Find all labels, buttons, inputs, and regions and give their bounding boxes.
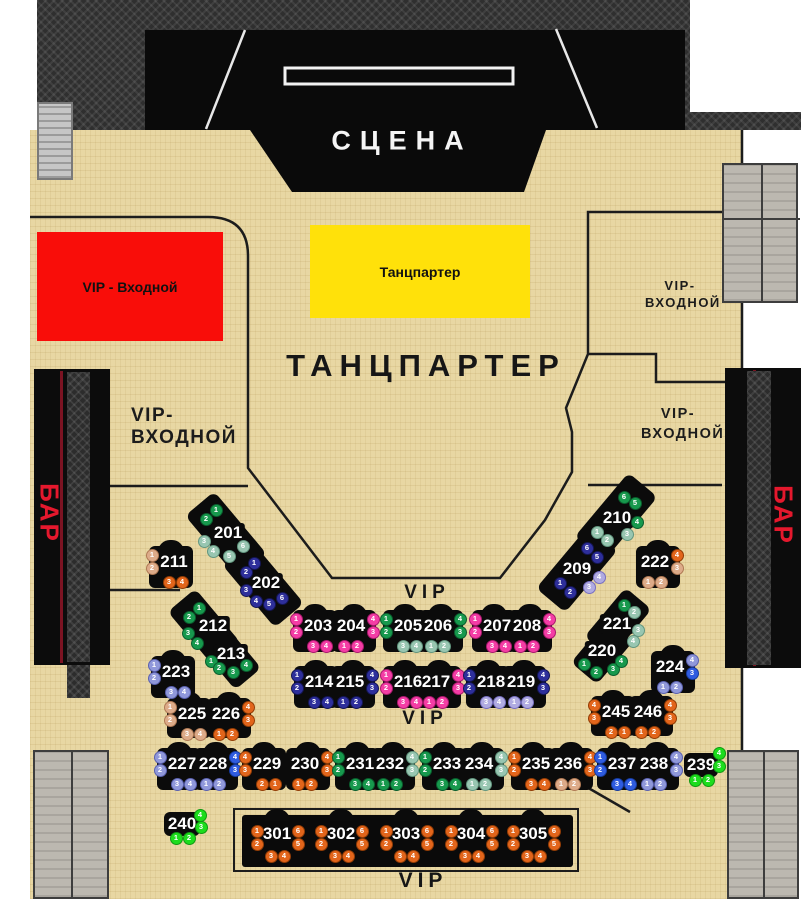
seat-2[interactable]: 2 — [419, 764, 432, 777]
table-number: 202 — [249, 573, 283, 593]
seat-5[interactable]: 5 — [223, 550, 236, 563]
table-number: 237 — [608, 754, 636, 774]
seat-2[interactable]: 2 — [670, 681, 683, 694]
seat-3[interactable]: 3 — [454, 626, 467, 639]
seat-3[interactable]: 3 — [181, 728, 194, 741]
seat-4[interactable]: 4 — [671, 549, 684, 562]
seat-2[interactable]: 2 — [628, 606, 641, 619]
seat-3[interactable]: 3 — [349, 778, 362, 791]
seat-3[interactable]: 3 — [621, 528, 634, 541]
seat-3[interactable]: 3 — [459, 850, 472, 863]
table-number: 240 — [168, 814, 196, 834]
table-number: 233 — [433, 754, 461, 774]
seat-6[interactable]: 6 — [548, 825, 561, 838]
seat-2[interactable]: 2 — [200, 513, 213, 526]
seat-5[interactable]: 5 — [292, 838, 305, 851]
seat-3[interactable]: 3 — [480, 696, 493, 709]
seat-1[interactable]: 1 — [290, 613, 303, 626]
seat-1[interactable]: 1 — [154, 751, 167, 764]
seat-4[interactable]: 4 — [627, 635, 640, 648]
seat-1[interactable]: 1 — [213, 728, 226, 741]
seat-5[interactable]: 5 — [548, 838, 561, 851]
seat-2[interactable]: 2 — [183, 832, 196, 845]
seat-3[interactable]: 3 — [521, 850, 534, 863]
seat-2[interactable]: 2 — [590, 666, 603, 679]
seat-4[interactable]: 4 — [367, 613, 380, 626]
seat-6[interactable]: 6 — [237, 540, 250, 553]
seat-4[interactable]: 4 — [543, 613, 556, 626]
seat-3[interactable]: 3 — [308, 696, 321, 709]
seat-4[interactable]: 4 — [242, 701, 255, 714]
seat-4[interactable]: 4 — [342, 850, 355, 863]
seat-1[interactable]: 1 — [578, 658, 591, 671]
seat-5[interactable]: 5 — [421, 838, 434, 851]
seat-1[interactable]: 1 — [291, 669, 304, 682]
seat-1[interactable]: 1 — [657, 681, 670, 694]
seat-3[interactable]: 3 — [495, 764, 508, 777]
seat-3[interactable]: 3 — [406, 764, 419, 777]
bar-left-label: БАР — [34, 483, 65, 543]
seat-1[interactable]: 1 — [170, 832, 183, 845]
table-number: 223 — [162, 662, 190, 682]
seat-4[interactable]: 4 — [495, 751, 508, 764]
table-number: 224 — [656, 657, 684, 677]
seat-6[interactable]: 6 — [618, 491, 631, 504]
table-number: 219 — [507, 672, 535, 692]
vip-entry-label-left: VIP-ВХОДНОЙ — [131, 405, 237, 449]
seat-4[interactable]: 4 — [191, 637, 204, 650]
seat-2[interactable]: 2 — [164, 714, 177, 727]
bar-left-texture-tail — [67, 665, 90, 698]
table-number: 210 — [600, 508, 634, 528]
seat-3[interactable]: 3 — [670, 764, 683, 777]
seat-1[interactable]: 1 — [419, 751, 432, 764]
seat-1[interactable]: 1 — [146, 549, 159, 562]
seat-1[interactable]: 1 — [251, 825, 264, 838]
seat-2[interactable]: 2 — [568, 778, 581, 791]
seat-2[interactable]: 2 — [146, 562, 159, 575]
seat-4[interactable]: 4 — [278, 850, 291, 863]
seat-1[interactable]: 1 — [423, 696, 436, 709]
seat-4[interactable]: 4 — [534, 850, 547, 863]
seat-3[interactable]: 3 — [686, 667, 699, 680]
seat-4[interactable]: 4 — [664, 699, 677, 712]
seat-3[interactable]: 3 — [227, 666, 240, 679]
seat-3[interactable]: 3 — [240, 584, 253, 597]
seat-3[interactable]: 3 — [486, 640, 499, 653]
seat-4[interactable]: 4 — [366, 669, 379, 682]
seat-4[interactable]: 4 — [194, 809, 207, 822]
seat-1[interactable]: 1 — [466, 778, 479, 791]
seat-2[interactable]: 2 — [702, 774, 715, 787]
seat-1[interactable]: 1 — [269, 778, 282, 791]
seat-2[interactable]: 2 — [351, 640, 364, 653]
seat-2[interactable]: 2 — [154, 764, 167, 777]
table-number: 228 — [199, 754, 227, 774]
table-number: 212 — [196, 616, 230, 636]
table-number: 302 — [327, 824, 355, 844]
seat-3[interactable]: 3 — [436, 778, 449, 791]
seat-2[interactable]: 2 — [655, 576, 668, 589]
seat-1[interactable]: 1 — [689, 774, 702, 787]
table-number: 238 — [640, 754, 668, 774]
table-number: 246 — [634, 702, 662, 722]
seat-2[interactable]: 2 — [226, 728, 239, 741]
seat-6[interactable]: 6 — [292, 825, 305, 838]
seat-1[interactable]: 1 — [380, 613, 393, 626]
bar-right: БАР — [725, 368, 801, 668]
table-number: 225 — [178, 704, 206, 724]
seat-1[interactable]: 1 — [618, 726, 631, 739]
seat-1[interactable]: 1 — [332, 751, 345, 764]
seat-4[interactable]: 4 — [178, 686, 191, 699]
seat-4[interactable]: 4 — [538, 778, 551, 791]
seat-2[interactable]: 2 — [390, 778, 403, 791]
seat-2[interactable]: 2 — [380, 682, 393, 695]
seat-3[interactable]: 3 — [543, 626, 556, 639]
table-number: 220 — [585, 641, 619, 661]
seat-2[interactable]: 2 — [350, 696, 363, 709]
table-number: 231 — [346, 754, 374, 774]
seat-2[interactable]: 2 — [315, 838, 328, 851]
seat-4[interactable]: 4 — [184, 778, 197, 791]
table-number: 245 — [602, 702, 630, 722]
table-number: 304 — [457, 824, 485, 844]
table-number: 236 — [554, 754, 582, 774]
entrance-block-top-right — [722, 163, 798, 303]
seat-3[interactable]: 3 — [713, 760, 726, 773]
seat-3[interactable]: 3 — [165, 686, 178, 699]
seat-2[interactable]: 2 — [601, 534, 614, 547]
seat-1[interactable]: 1 — [508, 751, 521, 764]
seat-4[interactable]: 4 — [686, 654, 699, 667]
seat-3[interactable]: 3 — [671, 562, 684, 575]
seat-4[interactable]: 4 — [410, 696, 423, 709]
seat-1[interactable]: 1 — [338, 640, 351, 653]
seat-3[interactable]: 3 — [367, 626, 380, 639]
bar-left: БАР — [34, 369, 110, 665]
table-number: 226 — [212, 704, 240, 724]
vip-label-bottom: VIP — [399, 869, 448, 893]
seat-4[interactable]: 4 — [176, 576, 189, 589]
seat-2[interactable]: 2 — [213, 662, 226, 675]
seat-3[interactable]: 3 — [242, 714, 255, 727]
seat-4[interactable]: 4 — [493, 696, 506, 709]
table-number: 209 — [560, 559, 594, 579]
vip-entry-label-right: VIP-ВХОДНОЙ — [641, 404, 715, 444]
seat-6[interactable]: 6 — [356, 825, 369, 838]
seat-2[interactable]: 2 — [469, 626, 482, 639]
table-number: 305 — [519, 824, 547, 844]
seat-2[interactable]: 2 — [648, 726, 661, 739]
stage-screen — [285, 68, 513, 84]
seat-1[interactable]: 1 — [463, 669, 476, 682]
table-number: 235 — [522, 754, 550, 774]
seat-3[interactable]: 3 — [588, 712, 601, 725]
seat-4[interactable]: 4 — [593, 571, 606, 584]
seat-1[interactable]: 1 — [555, 778, 568, 791]
table-number: 229 — [253, 754, 281, 774]
seat-2[interactable]: 2 — [479, 778, 492, 791]
stairs-top-left — [37, 102, 73, 180]
seat-2[interactable]: 2 — [594, 764, 607, 777]
seat-3[interactable]: 3 — [366, 682, 379, 695]
seat-1[interactable]: 1 — [164, 701, 177, 714]
seat-2[interactable]: 2 — [438, 640, 451, 653]
table-number: 214 — [305, 672, 333, 692]
seat-2[interactable]: 2 — [183, 611, 196, 624]
seat-4[interactable]: 4 — [588, 699, 601, 712]
seat-1[interactable]: 1 — [315, 825, 328, 838]
seat-3[interactable]: 3 — [611, 778, 624, 791]
seat-2[interactable]: 2 — [605, 726, 618, 739]
seat-2[interactable]: 2 — [213, 778, 226, 791]
seat-6[interactable]: 6 — [421, 825, 434, 838]
vip-label-upper: VIP — [404, 582, 450, 604]
seat-3[interactable]: 3 — [537, 682, 550, 695]
table-number: 218 — [477, 672, 505, 692]
seat-3[interactable]: 3 — [239, 764, 252, 777]
seat-2[interactable]: 2 — [436, 696, 449, 709]
seat-2[interactable]: 2 — [332, 764, 345, 777]
table-number: 215 — [336, 672, 364, 692]
seat-3[interactable]: 3 — [265, 850, 278, 863]
seat-4[interactable]: 4 — [472, 850, 485, 863]
seat-4[interactable]: 4 — [454, 613, 467, 626]
seat-2[interactable]: 2 — [251, 838, 264, 851]
seat-1[interactable]: 1 — [507, 825, 520, 838]
seat-1[interactable]: 1 — [445, 825, 458, 838]
seat-2[interactable]: 2 — [256, 778, 269, 791]
seat-1[interactable]: 1 — [292, 778, 305, 791]
entrance-block-bottom-left — [33, 750, 109, 899]
seat-4[interactable]: 4 — [410, 640, 423, 653]
entrance-block-bottom-right — [727, 750, 799, 899]
seat-4[interactable]: 4 — [631, 516, 644, 529]
seat-1[interactable]: 1 — [514, 640, 527, 653]
seat-3[interactable]: 3 — [171, 778, 184, 791]
seat-2[interactable]: 2 — [507, 838, 520, 851]
seat-4[interactable]: 4 — [537, 669, 550, 682]
table-number: 217 — [422, 672, 450, 692]
seat-2[interactable]: 2 — [148, 672, 161, 685]
seat-3[interactable]: 3 — [329, 850, 342, 863]
seat-4[interactable]: 4 — [362, 778, 375, 791]
seat-4[interactable]: 4 — [239, 751, 252, 764]
seat-4[interactable]: 4 — [407, 850, 420, 863]
seat-4[interactable]: 4 — [250, 595, 263, 608]
table-number: 203 — [304, 616, 332, 636]
seat-3[interactable]: 3 — [397, 696, 410, 709]
seat-3[interactable]: 3 — [394, 850, 407, 863]
seat-4[interactable]: 4 — [194, 728, 207, 741]
seat-1[interactable]: 1 — [635, 726, 648, 739]
bar-right-label: БАР — [768, 485, 799, 545]
seat-3[interactable]: 3 — [525, 778, 538, 791]
stage-label: СЦЕНА — [331, 126, 472, 157]
table-number: 211 — [160, 552, 187, 572]
seat-3[interactable]: 3 — [163, 576, 176, 589]
seat-2[interactable]: 2 — [380, 626, 393, 639]
seat-1[interactable]: 1 — [337, 696, 350, 709]
seat-2[interactable]: 2 — [291, 682, 304, 695]
seat-2[interactable]: 2 — [654, 778, 667, 791]
seat-6[interactable]: 6 — [276, 592, 289, 605]
seat-4[interactable]: 4 — [615, 655, 628, 668]
seat-2[interactable]: 2 — [240, 566, 253, 579]
table-number: 205 — [394, 616, 422, 636]
seat-2[interactable]: 2 — [521, 696, 534, 709]
vip-label-middle: VIP — [402, 708, 448, 730]
venue-seating-map: БАР БАР СЦЕНА VIP - Входной Танцпартер Т… — [0, 0, 801, 899]
seat-5[interactable]: 5 — [356, 838, 369, 851]
seat-1[interactable]: 1 — [594, 751, 607, 764]
seat-4[interactable]: 4 — [321, 696, 334, 709]
table-number: 216 — [394, 672, 422, 692]
seat-1[interactable]: 1 — [641, 778, 654, 791]
seat-5[interactable]: 5 — [486, 838, 499, 851]
seat-3[interactable]: 3 — [195, 821, 208, 834]
table-number: 207 — [483, 616, 511, 636]
seat-4[interactable]: 4 — [713, 747, 726, 760]
seat-1[interactable]: 1 — [148, 659, 161, 672]
stage-shape — [145, 30, 685, 192]
seat-3[interactable]: 3 — [307, 640, 320, 653]
seat-2[interactable]: 2 — [305, 778, 318, 791]
seat-5[interactable]: 5 — [263, 598, 276, 611]
seat-4[interactable]: 4 — [670, 751, 683, 764]
seat-1[interactable]: 1 — [425, 640, 438, 653]
seat-1[interactable]: 1 — [642, 576, 655, 589]
seat-4[interactable]: 4 — [240, 659, 253, 672]
seat-3[interactable]: 3 — [397, 640, 410, 653]
table-number: 239 — [687, 755, 715, 775]
table-number: 303 — [392, 824, 420, 844]
seat-4[interactable]: 4 — [499, 640, 512, 653]
seat-4[interactable]: 4 — [624, 778, 637, 791]
seat-2[interactable]: 2 — [290, 626, 303, 639]
seat-1[interactable]: 1 — [508, 696, 521, 709]
table-number: 232 — [376, 754, 404, 774]
table-number: 208 — [513, 616, 541, 636]
seat-1[interactable]: 1 — [200, 778, 213, 791]
table-number: 230 — [291, 754, 319, 774]
seat-6[interactable]: 6 — [486, 825, 499, 838]
seat-2[interactable]: 2 — [508, 764, 521, 777]
seat-4[interactable]: 4 — [406, 751, 419, 764]
seat-3[interactable]: 3 — [664, 712, 677, 725]
table-number: 234 — [465, 754, 493, 774]
seat-4[interactable]: 4 — [449, 778, 462, 791]
table-number: 204 — [337, 616, 365, 636]
seat-3[interactable]: 3 — [583, 581, 596, 594]
seat-4[interactable]: 4 — [207, 545, 220, 558]
seat-1[interactable]: 1 — [380, 669, 393, 682]
zone-dancefloor-yellow[interactable]: Танцпартер — [310, 225, 530, 318]
dancefloor-title: ТАНЦПАРТЕР — [286, 348, 566, 384]
seat-1[interactable]: 1 — [380, 825, 393, 838]
seat-1[interactable]: 1 — [469, 613, 482, 626]
seat-1[interactable]: 1 — [377, 778, 390, 791]
seat-2[interactable]: 2 — [445, 838, 458, 851]
seat-2[interactable]: 2 — [564, 586, 577, 599]
seat-2[interactable]: 2 — [380, 838, 393, 851]
zone-vip-entry-red[interactable]: VIP - Входной — [37, 232, 223, 341]
table-number: 301 — [263, 824, 291, 844]
seat-4[interactable]: 4 — [320, 640, 333, 653]
seat-6[interactable]: 6 — [581, 542, 594, 555]
table-number: 227 — [168, 754, 196, 774]
table-number: 206 — [424, 616, 452, 636]
table-number: 222 — [641, 552, 669, 572]
seat-2[interactable]: 2 — [527, 640, 540, 653]
seat-2[interactable]: 2 — [463, 682, 476, 695]
vip-entry-label-top-right: VIP-ВХОДНОЙ — [645, 277, 715, 311]
